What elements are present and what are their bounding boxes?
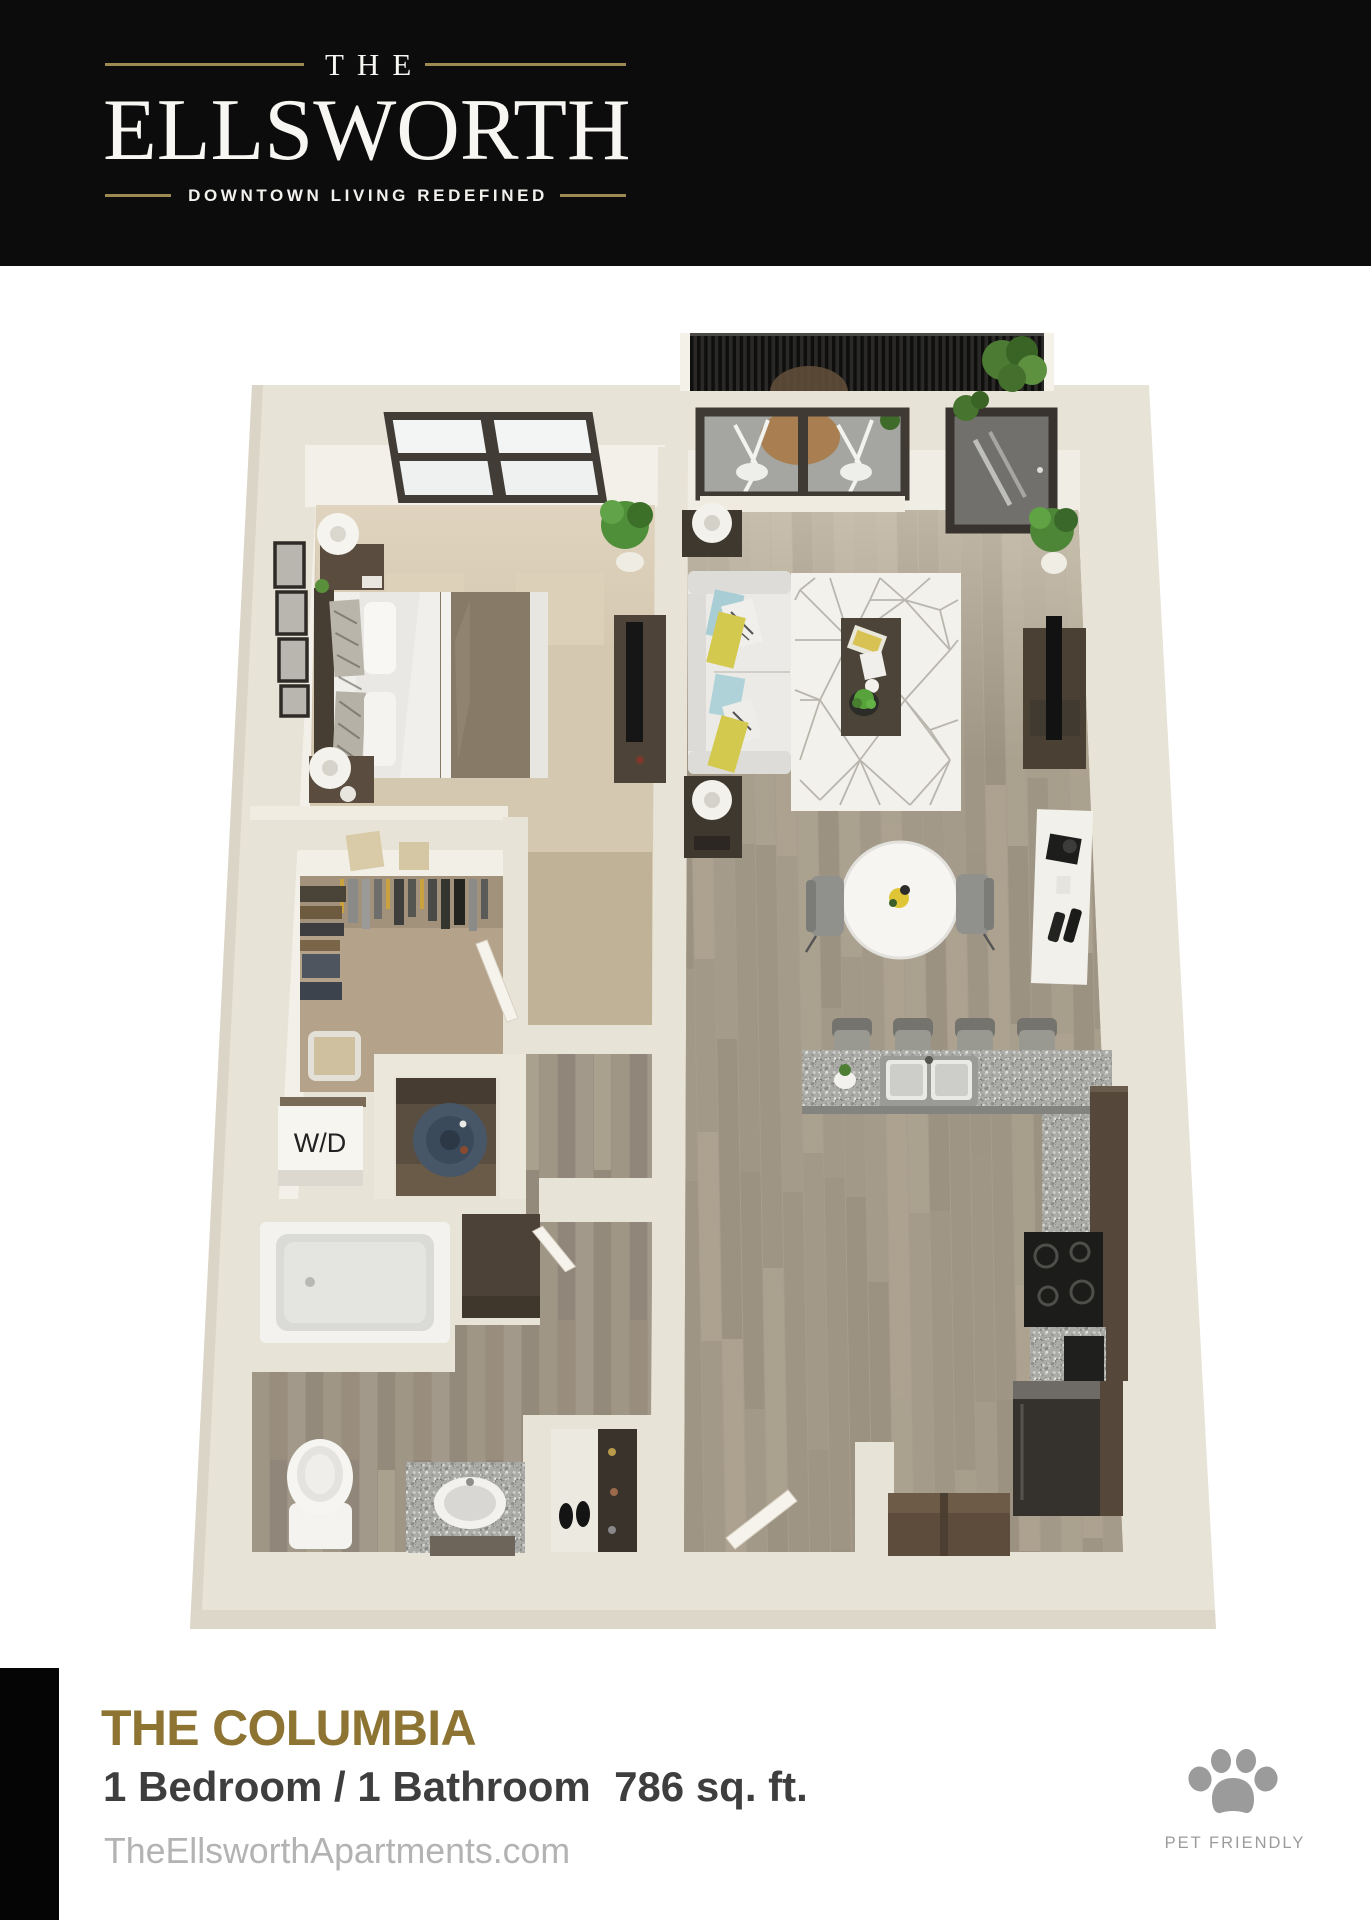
svg-text:W/D: W/D bbox=[294, 1128, 346, 1158]
